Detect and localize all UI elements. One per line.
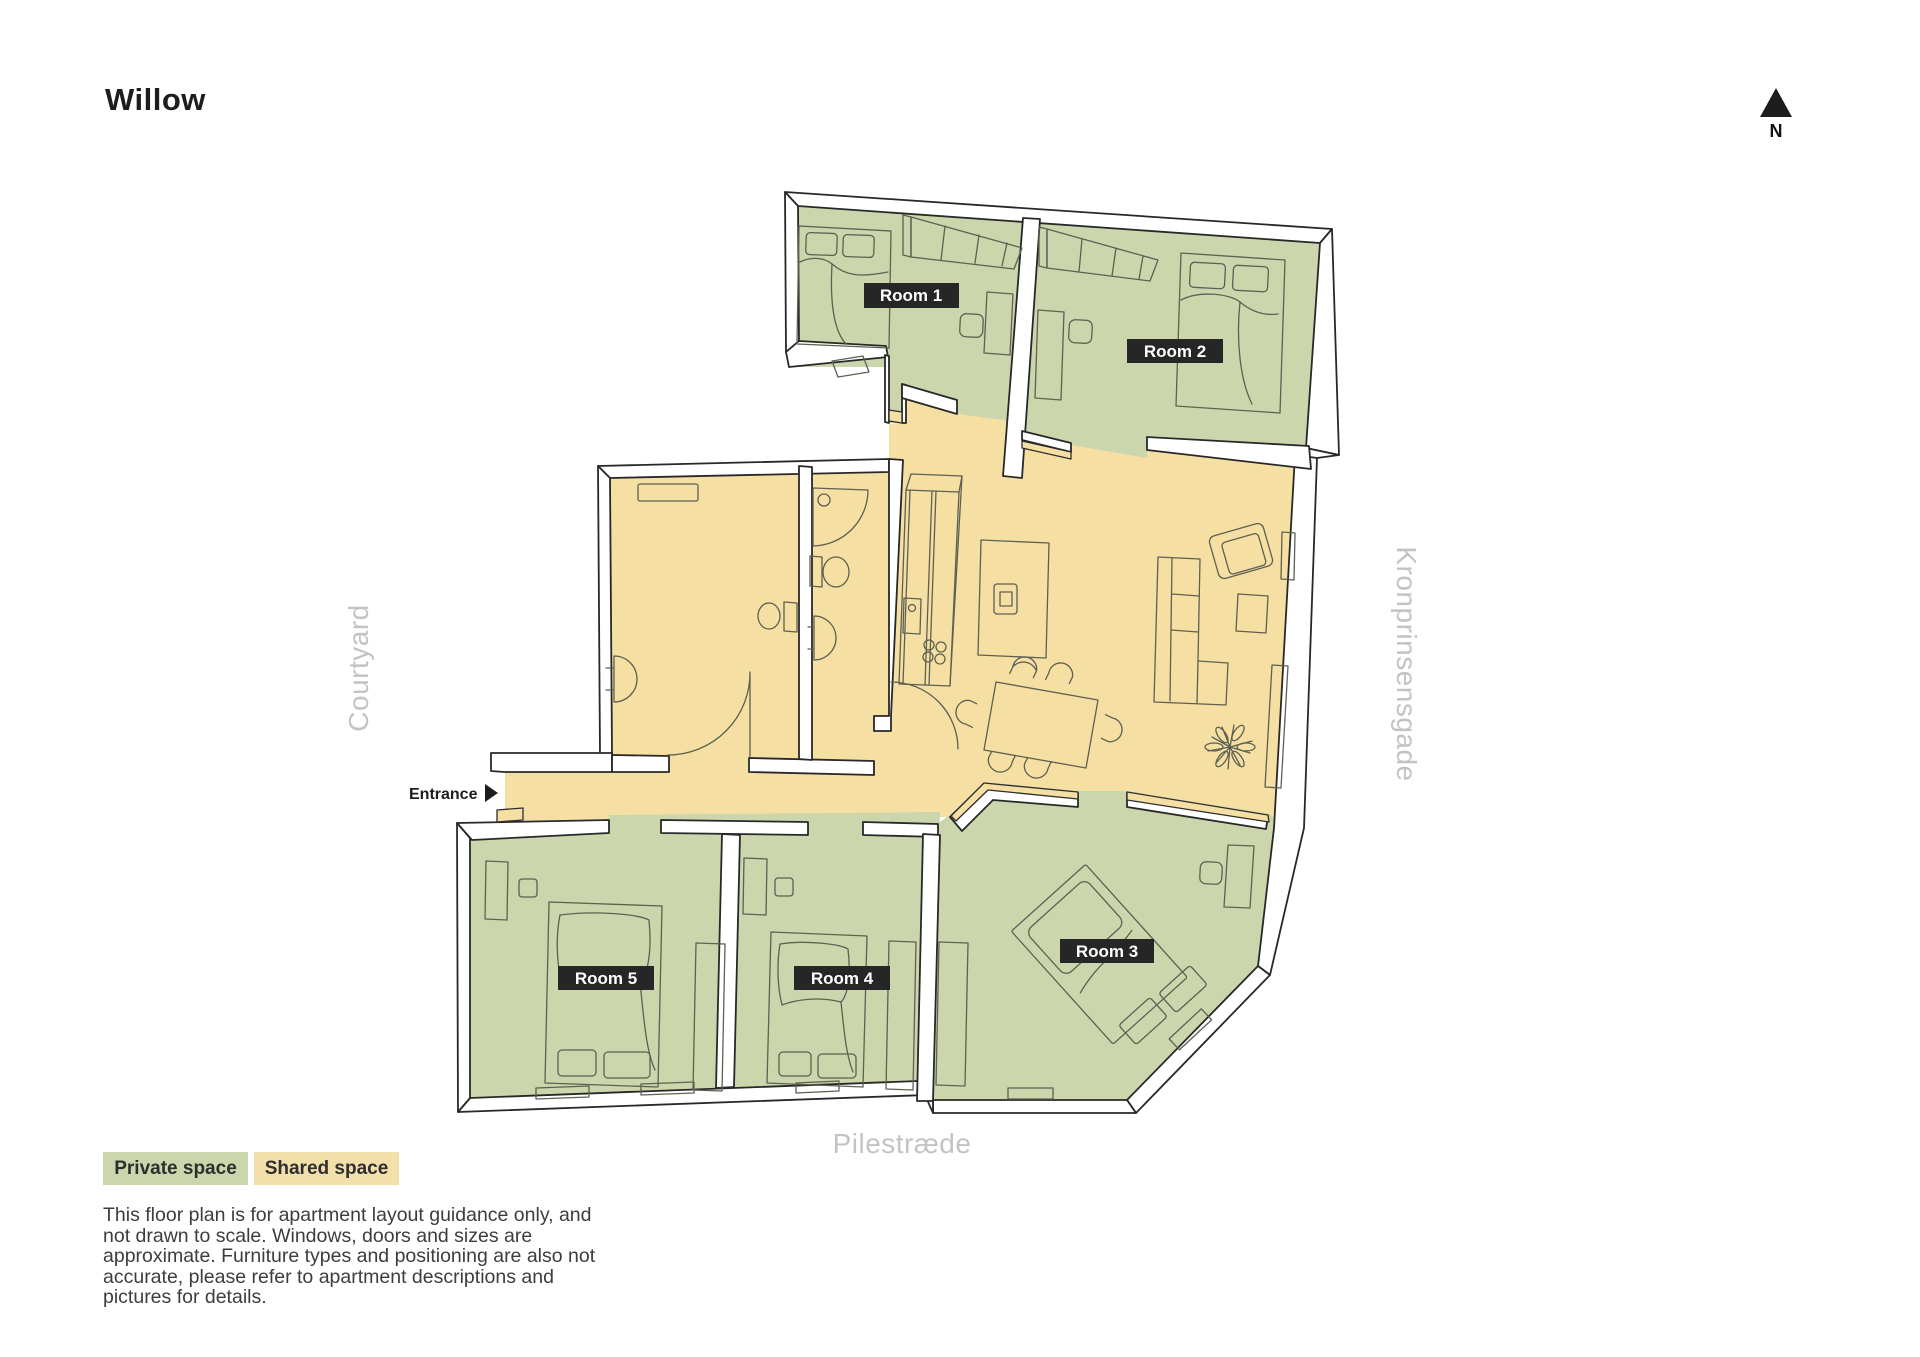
svg-text:Room 4: Room 4 xyxy=(811,969,874,988)
svg-text:Room 1: Room 1 xyxy=(880,286,942,305)
svg-text:Room 3: Room 3 xyxy=(1076,942,1138,961)
svg-text:Room 5: Room 5 xyxy=(575,969,637,988)
svg-text:Room 2: Room 2 xyxy=(1144,342,1206,361)
